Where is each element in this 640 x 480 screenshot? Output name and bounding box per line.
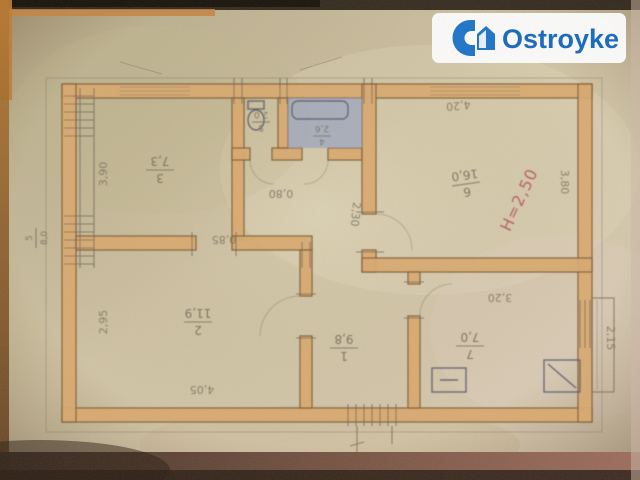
floorplan-canvas: 3 7,3 3,90 0,85 5 8,0 5 2,0 4 2,6 0,80 2… bbox=[0, 0, 640, 480]
floorplan-photo: 3 7,3 3,90 0,85 5 8,0 5 2,0 4 2,6 0,80 2… bbox=[0, 0, 640, 480]
photo-grain bbox=[0, 0, 640, 480]
